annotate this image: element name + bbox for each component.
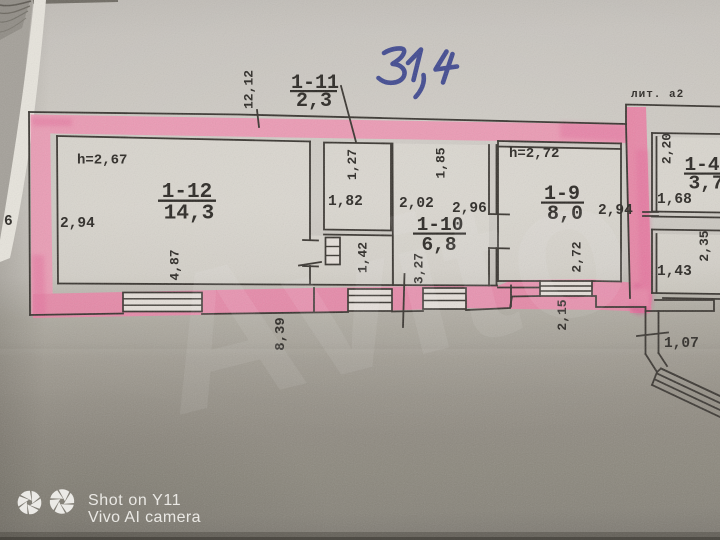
svg-text:Vivo AI camera: Vivo AI camera bbox=[88, 509, 201, 526]
svg-text:Shot on Y11: Shot on Y11 bbox=[88, 492, 181, 509]
